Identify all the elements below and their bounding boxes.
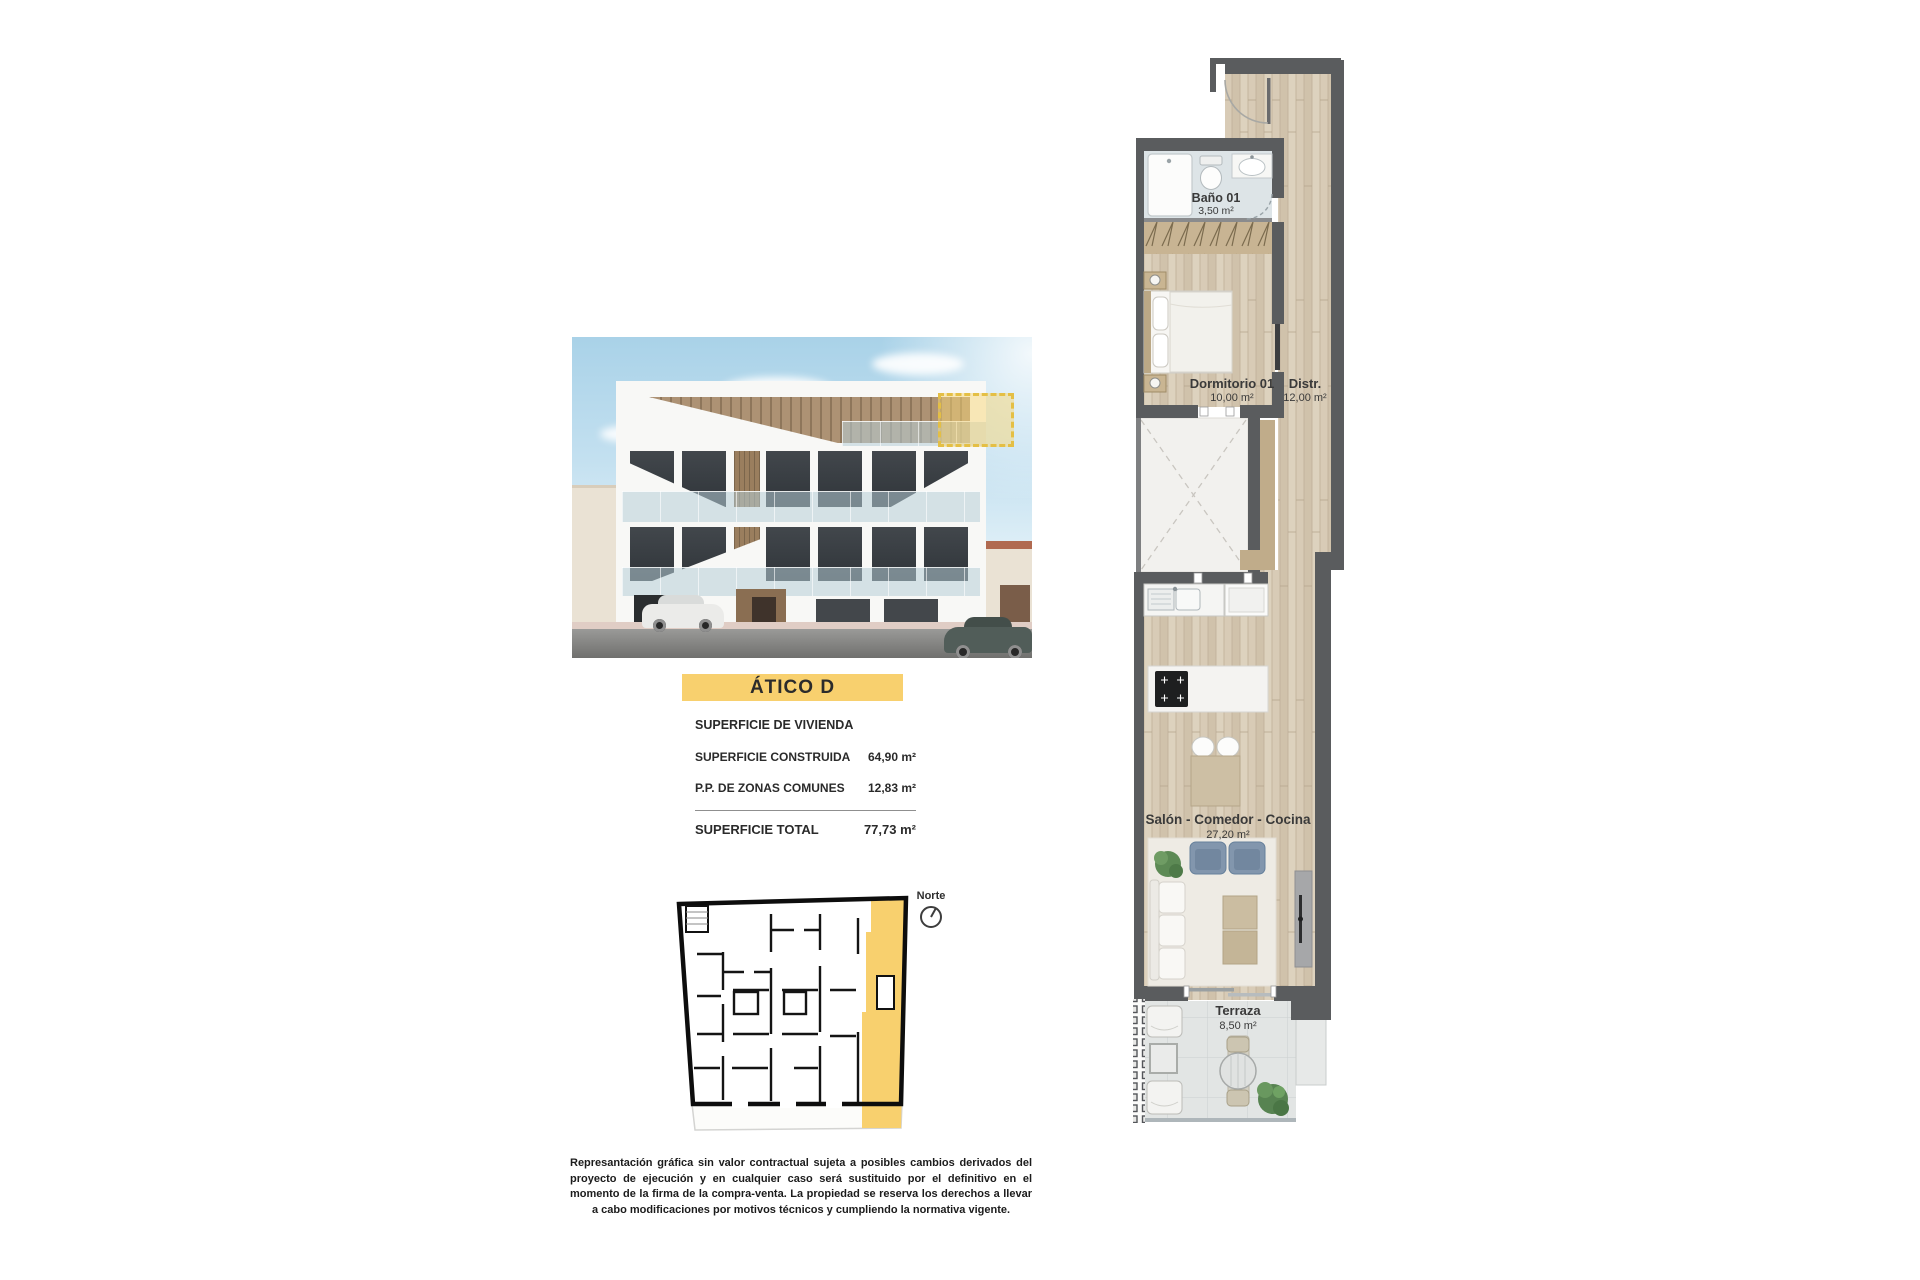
floor-1 bbox=[616, 521, 986, 595]
balcony-glass bbox=[622, 567, 980, 596]
surface-total-row: SUPERFICIE TOTAL 77,73 m² bbox=[695, 822, 916, 837]
room-label-dormitorio: Dormitorio 01 bbox=[1190, 376, 1275, 391]
surface-total-label: SUPERFICIE TOTAL bbox=[695, 822, 819, 837]
cloud bbox=[872, 353, 964, 375]
floor-2 bbox=[616, 443, 986, 521]
room-area-terraza: 8,50 m² bbox=[1219, 1020, 1257, 1032]
surface-panel: SUPERFICIE DE VIVIENDA SUPERFICIE CONSTR… bbox=[695, 718, 916, 844]
room-area-bano: 3,50 m² bbox=[1198, 205, 1234, 217]
room-label-terraza: Terraza bbox=[1215, 1003, 1261, 1018]
north-label: Norte bbox=[906, 890, 956, 902]
room-area-dormitorio: 10,00 m² bbox=[1210, 392, 1254, 404]
room-label-distr: Distr. bbox=[1289, 376, 1322, 391]
surface-row-label: SUPERFICIE CONSTRUIDA bbox=[695, 750, 850, 764]
room-label-salon: Salón - Comedor - Cocina bbox=[1145, 812, 1311, 827]
surface-row: SUPERFICIE CONSTRUIDA 64,90 m² bbox=[695, 750, 916, 764]
car-dark bbox=[944, 615, 1032, 657]
surface-row-label: P.P. DE ZONAS COMUNES bbox=[695, 781, 845, 795]
surface-row: P.P. DE ZONAS COMUNES 12,83 m² bbox=[695, 781, 916, 795]
room-label-bano: Baño 01 bbox=[1192, 191, 1241, 205]
atico-highlight-box bbox=[938, 393, 1014, 447]
north-compass-icon bbox=[907, 902, 955, 932]
north-indicator: Norte bbox=[906, 890, 956, 938]
balcony-glass bbox=[622, 491, 980, 522]
surface-row-value: 12,83 m² bbox=[868, 781, 916, 795]
overview-floorplan bbox=[674, 890, 910, 1140]
legal-disclaimer: Represantación gráfica sin valor contrac… bbox=[570, 1156, 1032, 1218]
building-render-image bbox=[572, 337, 1032, 658]
main-building-facade bbox=[616, 381, 986, 629]
room-area-distr: 12,00 m² bbox=[1283, 392, 1327, 404]
overview-floorplan-drawing bbox=[674, 890, 910, 1140]
detailed-floorplan: Baño 01 3,50 m² Dormitorio 01 10,00 m² D… bbox=[1128, 58, 1368, 1138]
unit-title-banner: ÁTICO D bbox=[682, 674, 903, 701]
brochure-page: ÁTICO D SUPERFICIE DE VIVIENDA SUPERFICI… bbox=[0, 0, 1920, 1280]
divider bbox=[695, 810, 916, 811]
car-white bbox=[642, 595, 724, 631]
room-area-salon: 27,20 m² bbox=[1206, 829, 1250, 841]
surface-row-value: 64,90 m² bbox=[868, 750, 916, 764]
surface-panel-header: SUPERFICIE DE VIVIENDA bbox=[695, 718, 853, 732]
terrace-railing bbox=[1133, 999, 1145, 1123]
surface-total-value: 77,73 m² bbox=[864, 822, 916, 837]
